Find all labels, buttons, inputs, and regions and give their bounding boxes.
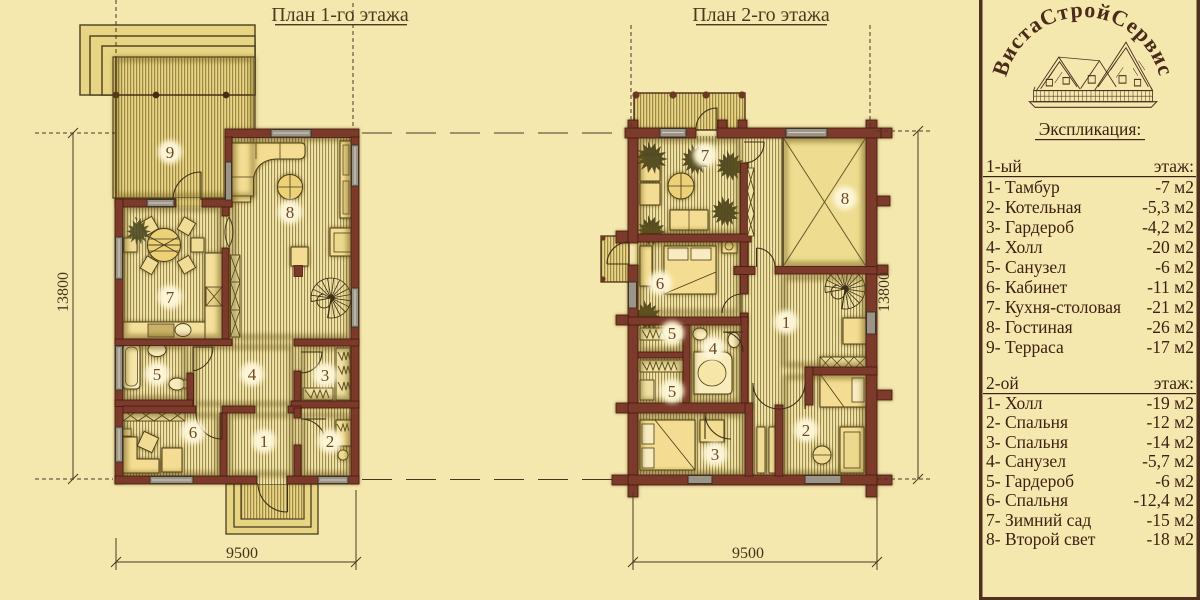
svg-text:9500: 9500 [732,545,764,562]
svg-text:-18 м2: -18 м2 [1146,529,1194,549]
svg-text:8: 8 [841,189,850,208]
svg-text:6: 6 [189,423,198,442]
svg-text:13800: 13800 [876,272,893,312]
svg-text:-21 м2: -21 м2 [1146,297,1194,317]
svg-text:3- Спальня: 3- Спальня [986,432,1068,452]
svg-text:13800: 13800 [55,272,72,312]
svg-text:4- Холл: 4- Холл [986,237,1043,257]
svg-text:-20 м2: -20 м2 [1146,237,1194,257]
svg-text:1- Холл: 1- Холл [986,393,1043,413]
svg-text:Экспликация:: Экспликация: [1039,119,1142,139]
svg-text:5- Гардероб: 5- Гардероб [986,471,1074,491]
svg-text:-5,3 м2: -5,3 м2 [1142,197,1194,217]
svg-text:9: 9 [166,143,175,162]
svg-text:5- Санузел: 5- Санузел [986,257,1066,277]
svg-text:7: 7 [166,288,175,307]
svg-text:6: 6 [656,274,665,293]
svg-text:3- Гардероб: 3- Гардероб [986,217,1074,237]
svg-text:9- Терраса: 9- Терраса [986,337,1064,357]
svg-text:2-ой: 2-ой [986,373,1019,393]
svg-text:-14 м2: -14 м2 [1146,432,1194,452]
svg-text:-5,7 м2: -5,7 м2 [1142,451,1194,471]
svg-text:План 1-го этажа: План 1-го этажа [271,4,409,26]
svg-text:7: 7 [701,146,710,165]
svg-text:-17 м2: -17 м2 [1146,337,1194,357]
svg-text:2: 2 [326,432,335,451]
svg-text:8- Второй свет: 8- Второй свет [986,529,1096,549]
svg-text:6- Спальня: 6- Спальня [986,490,1068,510]
svg-text:5: 5 [153,365,162,384]
svg-text:2- Спальня: 2- Спальня [986,412,1068,432]
svg-text:6- Кабинет: 6- Кабинет [986,277,1068,297]
svg-text:План 2-го этажа: План 2-го этажа [692,4,830,26]
svg-text:3: 3 [711,445,720,464]
svg-text:-26 м2: -26 м2 [1146,317,1194,337]
svg-text:7- Кухня-столовая: 7- Кухня-столовая [986,297,1121,317]
svg-text:1: 1 [260,432,269,451]
svg-text:5: 5 [668,382,677,401]
svg-text:-12 м2: -12 м2 [1146,412,1194,432]
svg-text:7- Зимний сад: 7- Зимний сад [986,510,1091,530]
svg-text:-19 м2: -19 м2 [1146,393,1194,413]
svg-text:этаж:: этаж: [1154,373,1194,393]
svg-text:2- Котельная: 2- Котельная [986,197,1082,217]
svg-text:8: 8 [286,203,295,222]
svg-text:3: 3 [321,366,330,385]
svg-text:4: 4 [248,365,257,384]
svg-text:-6 м2: -6 м2 [1155,257,1194,277]
svg-text:-15 м2: -15 м2 [1146,510,1194,530]
svg-text:2: 2 [802,421,811,440]
svg-text:1-ый: 1-ый [986,156,1022,176]
svg-text:4: 4 [709,339,718,358]
svg-text:-6 м2: -6 м2 [1155,471,1194,491]
svg-text:-4,2 м2: -4,2 м2 [1142,217,1194,237]
svg-text:этаж:: этаж: [1154,156,1194,176]
svg-text:-7 м2: -7 м2 [1155,177,1194,197]
svg-text:1- Тамбур: 1- Тамбур [986,177,1060,197]
svg-text:1: 1 [782,313,791,332]
svg-text:4- Санузел: 4- Санузел [986,451,1066,471]
svg-text:5: 5 [668,324,677,343]
svg-text:9500: 9500 [226,545,258,562]
svg-text:-12,4 м2: -12,4 м2 [1133,490,1194,510]
svg-text:-11 м2: -11 м2 [1147,277,1194,297]
svg-text:8- Гостиная: 8- Гостиная [986,317,1073,337]
